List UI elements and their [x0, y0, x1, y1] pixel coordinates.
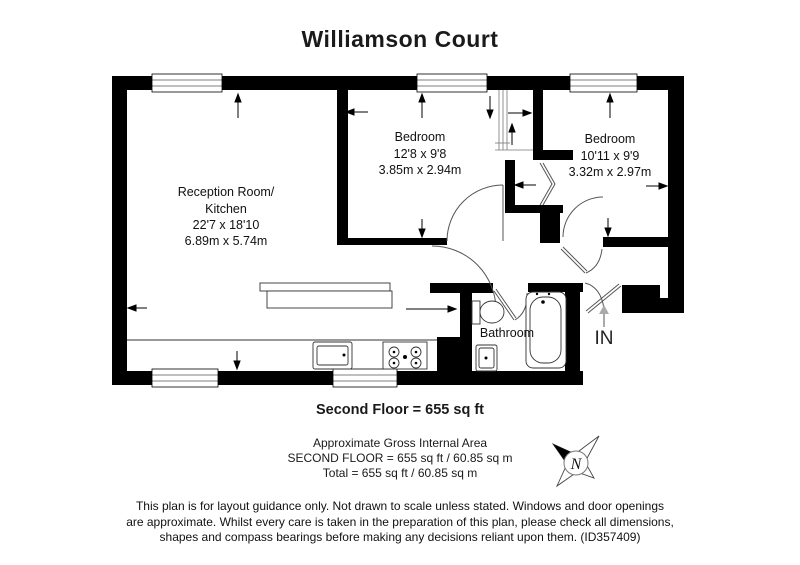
wall	[603, 237, 668, 247]
wall	[622, 285, 660, 300]
kitchen-island	[260, 283, 390, 291]
entrance-label: IN	[595, 328, 614, 349]
door-arc	[563, 197, 603, 237]
bedroom2-dims-ft: 10'11 x 9'9	[581, 149, 640, 163]
wall	[533, 90, 543, 160]
door-arc	[447, 185, 503, 241]
disclaimer-line3: shapes and compass bearings before makin…	[0, 530, 800, 546]
disclaimer-line2: are approximate. Whilst every care is ta…	[0, 515, 800, 531]
bathroom-sink	[476, 345, 497, 371]
wall	[505, 205, 563, 213]
entry-arrow-head	[599, 305, 609, 314]
reception-label: Reception Room/	[178, 185, 275, 199]
entrance: IN	[595, 305, 614, 349]
door-arc	[515, 293, 527, 320]
window	[417, 74, 487, 92]
bifold-door	[543, 163, 555, 205]
door-leaf	[563, 247, 587, 271]
area-note-line3: Total = 655 sq ft / 60.85 sq m	[0, 466, 800, 481]
wall	[565, 287, 580, 371]
door-arc	[586, 249, 602, 273]
bathroom-label: Bathroom	[480, 326, 534, 340]
floorplan-page: Williamson Court	[0, 0, 800, 565]
window	[570, 74, 637, 92]
bedroom2-dims-m: 3.32m x 2.97m	[569, 165, 652, 179]
wall	[437, 337, 460, 371]
area-note-line1: Approximate Gross Internal Area	[0, 436, 800, 451]
wall	[540, 213, 560, 243]
wall	[533, 150, 573, 160]
wall	[337, 238, 447, 245]
reception-label-2: Kitchen	[205, 202, 247, 216]
area-note: Approximate Gross Internal Area SECOND F…	[0, 436, 800, 481]
kitchen-island	[267, 291, 392, 308]
window	[152, 74, 222, 92]
wall	[337, 90, 348, 245]
wall	[460, 288, 472, 371]
reception-dims-ft: 22'7 x 18'10	[193, 218, 260, 232]
kitchen-sink	[313, 342, 352, 369]
kitchen-fixtures	[127, 283, 437, 369]
hob	[383, 342, 427, 369]
disclaimer-line1: This plan is for layout guidance only. N…	[0, 499, 800, 515]
window	[152, 369, 218, 387]
area-note-line2: SECOND FLOOR = 655 sq ft / 60.85 sq m	[0, 451, 800, 466]
window	[333, 369, 397, 387]
reception-dims-m: 6.89m x 5.74m	[185, 234, 268, 248]
wall	[112, 76, 127, 385]
toilet	[472, 301, 504, 324]
bifold-door	[540, 163, 552, 205]
duct-detail	[495, 90, 533, 150]
bedroom1-label: Bedroom	[395, 130, 446, 144]
door-leaf	[561, 249, 585, 273]
floor-summary: Second Floor = 655 sq ft	[0, 402, 800, 418]
entry-door-leaf	[586, 284, 619, 311]
door-arc	[585, 283, 604, 309]
bedroom2-label: Bedroom	[585, 132, 636, 146]
wall	[430, 283, 493, 293]
wall	[622, 298, 684, 313]
bedroom1-dims-m: 3.85m x 2.94m	[379, 163, 462, 177]
wall	[668, 76, 684, 313]
bedroom1-dims-ft: 12'8 x 9'8	[394, 147, 447, 161]
disclaimer: This plan is for layout guidance only. N…	[0, 499, 800, 546]
